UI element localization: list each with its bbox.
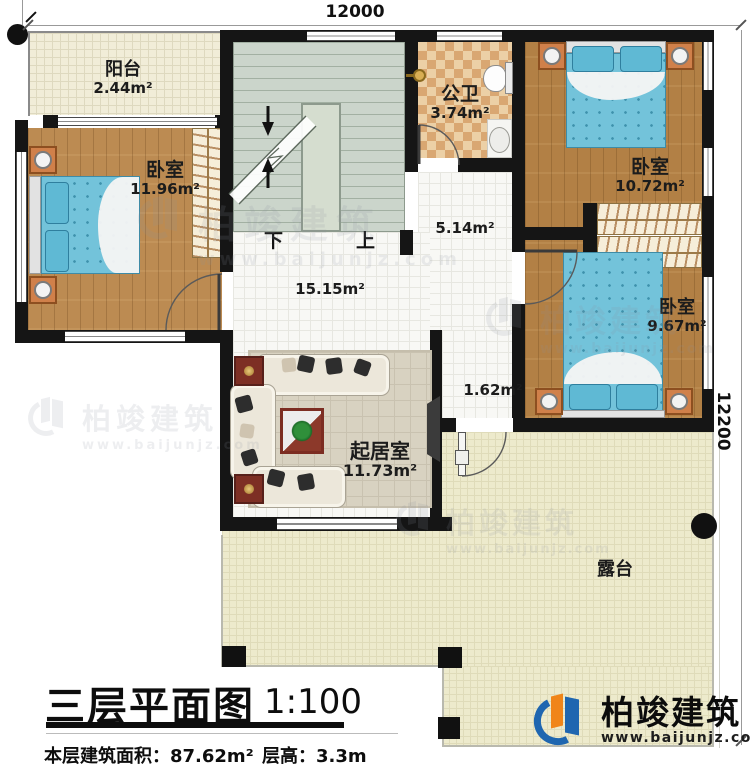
bed-pillow [616,384,658,410]
room-name: 阳台 [63,60,183,80]
label-hall-area: 15.15m² [285,280,375,298]
nightstand [666,42,694,70]
label-living-room: 起居室 11.73m² [330,440,430,480]
cushion [325,357,343,375]
wall-balcony-a [43,115,58,128]
nightstand [29,146,57,174]
wall-stair-stub [400,230,413,255]
side-table [234,474,264,504]
dim-top-value: 12000 [322,2,388,22]
coffee-table [280,408,324,454]
wall-entry-bottom-stub [442,418,456,432]
table-ornament [244,366,254,376]
bed-pillow [45,230,69,272]
wall-balcony-b [215,115,233,128]
room-area: 11.73m² [330,462,430,480]
title-underline [46,722,344,728]
label-bedroom-bottom-right: 卧室 9.67m² [627,298,727,335]
lamp-icon [540,393,558,410]
logo-company-name: 柏竣建筑 [601,696,750,731]
room-name: 公卫 [410,84,510,105]
room-area: 2.44m² [63,80,183,97]
label-stairs-down: 下 [264,226,283,253]
wardrobe-top-right [597,203,702,235]
label-entry-area: 1.62m² [453,381,533,399]
bed-pillow [569,384,611,410]
label-bedroom-top-right: 卧室 10.72m² [600,157,700,195]
entry-floor [442,330,512,418]
logo-website: www.baijunjz.com [601,730,750,746]
balcony-railing-left [28,31,30,116]
window-balcony-door [58,117,217,126]
plan-scale: 1:100 [264,682,362,722]
dim-ext-topleft [22,0,23,25]
company-logo: 柏竣建筑 www.baijunjz.com [534,692,750,750]
floor-height-text: 层高：3.3m [262,742,367,768]
bed-headboard [29,176,41,274]
terrace-edge-bottom-a [221,665,444,667]
nightstand [538,42,566,70]
lamp-icon [34,151,52,169]
nightstand [29,276,57,304]
label-bedroom-left: 卧室 11.96m² [105,160,225,198]
wall-mid-vertical-c [512,304,525,418]
label-bathroom: 公卫 3.74m² [410,84,510,122]
balcony-railing-top [28,31,220,33]
bed-pillow [620,46,662,72]
brand-glyph-icon [28,396,72,440]
window-stairs-top [307,31,395,41]
window-bedroom-left [16,152,27,302]
wardrobe-rail [598,219,701,221]
room-name: 露台 [580,560,650,580]
wall-mid-vertical-a [512,30,525,227]
wall-spine-upper [220,30,233,272]
shower-head-icon [413,69,426,82]
dim-right-value: 12200 [713,386,733,456]
floor-area-text: 本层建筑面积：87.62m² [44,742,254,768]
room-name: 卧室 [600,157,700,178]
room-name: 卧室 [105,160,225,181]
terrace-column-1 [222,646,246,667]
plant-icon [291,419,313,443]
wall-bathroom-bottom-a [405,158,418,172]
window-bedroom-tr-right-2 [703,148,713,196]
terrace-door-handle [455,450,469,465]
terrace-column-2 [438,647,462,668]
nightstand [535,388,563,415]
lamp-icon [671,47,689,65]
cushion [239,423,255,439]
bed-footboard [561,410,665,418]
dim-line-top [28,25,741,26]
window-living-bottom [277,518,397,530]
room-area: 11.96m² [105,181,225,198]
cushion [297,473,316,492]
terrace-column-3 [438,717,460,739]
terrace-column-round [691,513,717,539]
lamp-icon [670,393,688,410]
cushion [281,357,296,372]
room-area: 10.72m² [600,178,700,195]
window-bedroom-tr-right-1 [703,42,713,90]
room-name: 卧室 [627,298,727,318]
label-stairs-up: 上 [356,226,375,253]
table-ornament [244,484,254,494]
corridor-floor [418,172,512,330]
stair-shaft [301,103,341,232]
bed-pillow [572,46,614,72]
wall-bedroom-br-bottom [513,418,714,432]
label-corridor-area: 5.14m² [425,219,505,237]
lamp-icon [34,281,52,299]
wall-bathroom-bottom-b [458,158,520,172]
label-terrace: 露台 [580,560,650,580]
wall-mid-vertical-b [512,240,525,252]
cushion [297,355,316,374]
floor-plan: 阳台 2.44m² 卧室 11.96m² 公卫 3.74m² 卧室 10.72m… [0,0,750,775]
bed-pillow [45,182,69,224]
shower-arm [406,74,414,77]
brand-glyph-icon [534,692,592,750]
sofa-top [256,354,390,396]
room-area: 3.74m² [410,105,510,122]
lamp-icon [543,47,561,65]
sink [489,127,510,153]
nightstand [665,388,693,415]
room-name: 起居室 [330,440,430,462]
label-balcony: 阳台 2.44m² [63,60,183,97]
title-hairline [46,733,398,734]
dim-line-right [741,30,742,745]
window-bathroom-top [437,31,502,41]
side-table [234,356,264,386]
room-area: 9.67m² [627,318,727,335]
window-bedroom-left-bottom [65,331,185,342]
